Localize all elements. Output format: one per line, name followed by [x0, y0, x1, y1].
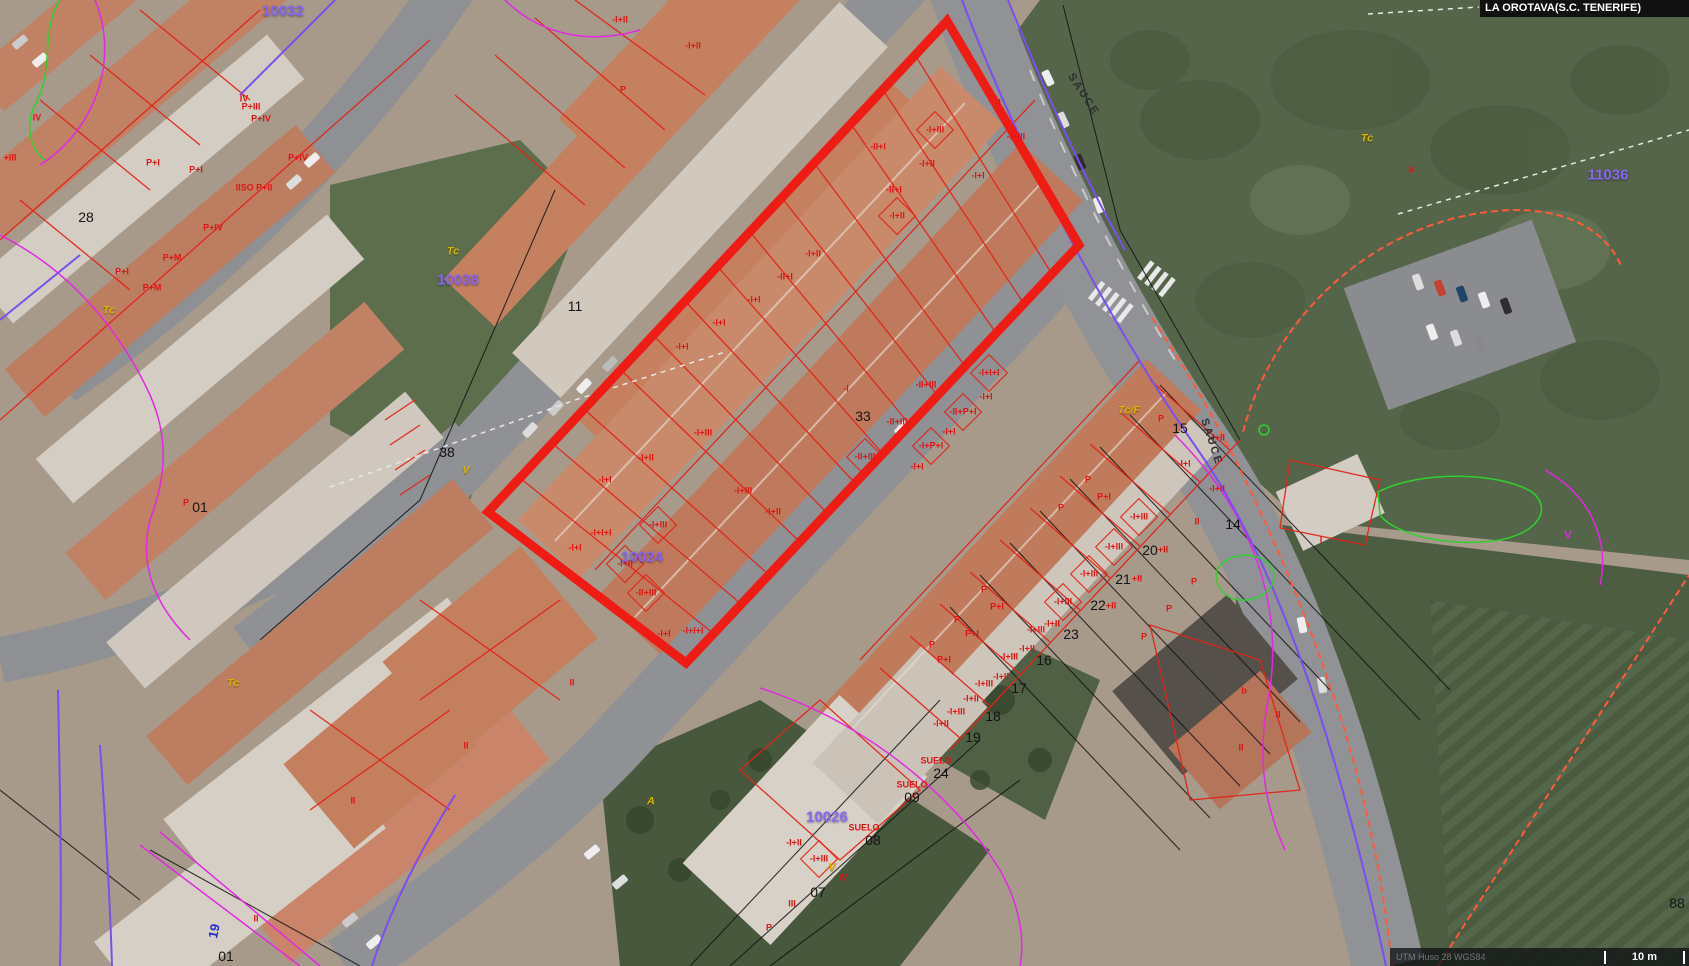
municipality-bar: LA OROTAVA(S.C. TENERIFE)	[1480, 0, 1689, 17]
height-code-label: -I+II	[617, 560, 633, 569]
parcel-id-label: 10026	[806, 810, 848, 825]
plot-number-label: 15	[1172, 421, 1188, 435]
land-use-label: Tc	[1361, 134, 1373, 145]
height-code-label: -II+III	[636, 589, 657, 598]
crs-label: UTM Huso 28 WGS84	[1396, 952, 1604, 962]
land-use-label: A	[647, 797, 655, 808]
height-code-label: P+M	[163, 254, 182, 263]
parcel-id-label: 10032	[262, 4, 304, 19]
height-code-label: -I+III	[1054, 598, 1072, 607]
height-code-label: SUELO	[896, 781, 927, 790]
height-code-label: -I+III	[810, 855, 828, 864]
height-code-label: P+I	[146, 159, 160, 168]
height-code-label: +II	[1158, 546, 1168, 555]
land-use-label: Tc	[447, 247, 459, 258]
height-code-label: P+I	[115, 268, 129, 277]
height-code-label: P+IV	[288, 154, 308, 163]
plot-number-label: 28	[78, 210, 94, 224]
height-code-label: IV	[33, 114, 42, 123]
height-code-label: -I+I	[675, 343, 688, 352]
plot-number-label: 18	[985, 709, 1001, 723]
plot-number-label: 07	[810, 885, 826, 899]
height-code-label: SUELO	[920, 757, 951, 766]
height-code-label: P+I	[1097, 493, 1111, 502]
height-code-label: P+I	[990, 603, 1004, 612]
height-code-label: -II+P+I	[949, 408, 976, 417]
land-use-label: V	[462, 466, 469, 477]
height-code-label: II	[350, 797, 355, 806]
height-code-label: -I+III	[1000, 653, 1018, 662]
height-code-label: -I+III	[1007, 133, 1025, 142]
height-code-label: -I+II	[933, 720, 949, 729]
street-name-label: SAUCE	[1065, 72, 1101, 119]
height-code-label: -II+III	[887, 418, 908, 427]
height-code-label: +II	[1106, 602, 1116, 611]
height-code-label: -I+II	[919, 160, 935, 169]
height-code-label: -I+II	[1044, 620, 1060, 629]
plot-number-label: 88	[1669, 896, 1685, 910]
height-code-label: -I+III	[1130, 513, 1148, 522]
height-code-label: P	[183, 499, 189, 508]
height-code-label: P+I	[189, 166, 203, 175]
height-code-label: -I+I+I	[590, 529, 611, 538]
height-code-label: IV	[240, 95, 249, 104]
height-code-label: -I+III	[1027, 626, 1045, 635]
plot-number-label: 16	[1036, 653, 1052, 667]
height-code-label: -I+II	[638, 454, 654, 463]
height-code-label: -I+I	[942, 428, 955, 437]
height-code-label: P	[954, 616, 960, 625]
land-use-label: Tc	[103, 306, 115, 317]
plot-number-label: 21	[1115, 572, 1131, 586]
land-use-label: Tc/F	[1118, 406, 1140, 417]
parcel-id-label: 10024	[621, 550, 663, 565]
height-code-label: III	[788, 900, 796, 909]
height-code-label: IV	[839, 874, 848, 883]
height-code-label: II	[1275, 711, 1280, 720]
height-code-label: P	[1058, 504, 1064, 513]
land-use-label: Tc	[227, 679, 239, 690]
land-use-label: V	[828, 863, 835, 874]
plot-number-label: 09	[904, 790, 920, 804]
height-code-label: b	[1241, 687, 1247, 696]
height-code-label: -I+I	[979, 393, 992, 402]
height-code-label: -I+I	[568, 544, 581, 553]
height-code-label: P	[766, 924, 772, 933]
height-code-label: II	[463, 742, 468, 751]
height-code-label: IISO P+II	[236, 184, 273, 193]
height-code-label: P	[1191, 578, 1197, 587]
height-code-label: P	[1141, 633, 1147, 642]
height-code-label: II	[253, 915, 258, 924]
height-code-label: I	[1320, 536, 1323, 545]
height-code-label: II	[1194, 518, 1199, 527]
plot-number-label: 22	[1090, 598, 1106, 612]
map-labels-layer: 1003210038100241002611036281138331514202…	[0, 0, 1689, 966]
height-code-label: -II+III	[916, 381, 937, 390]
height-code-label: P+M	[143, 284, 162, 293]
municipality-label: LA OROTAVA(S.C. TENERIFE)	[1485, 2, 1641, 14]
height-code-label: -II+I	[870, 143, 886, 152]
height-code-label: -I+III	[947, 708, 965, 717]
height-code-label: P+IV	[251, 115, 271, 124]
height-code-label: -I	[995, 99, 1001, 108]
height-code-label: -I+II	[612, 16, 628, 25]
scale-bar: 10 m	[1604, 951, 1685, 964]
plot-number-label: 23	[1063, 627, 1079, 641]
plot-number-label: 01	[218, 949, 234, 963]
height-code-label: -I+II	[1209, 434, 1225, 443]
height-code-label: -I+III	[1080, 570, 1098, 579]
height-code-label: -I+II	[963, 695, 979, 704]
height-code-label: +II	[1132, 575, 1142, 584]
height-code-label: -I+I+I	[978, 369, 999, 378]
height-code-label: -II+III	[855, 453, 876, 462]
height-code-label: -I+III	[1105, 543, 1123, 552]
parcel-id-label: 11036	[1588, 168, 1629, 183]
height-code-label: P	[1085, 476, 1091, 485]
height-code-label: -I+III	[649, 521, 667, 530]
height-code-label: -I+I	[657, 630, 670, 639]
height-code-label: P+III	[242, 103, 261, 112]
plot-number-label: 19	[965, 730, 981, 744]
height-code-label: P	[1166, 605, 1172, 614]
plot-number-label: 33	[855, 409, 871, 423]
boundary-letter-label: V	[1564, 531, 1571, 542]
parcel-id-label: 10038	[437, 273, 479, 288]
scale-strip: UTM Huso 28 WGS84 10 m	[1390, 948, 1689, 966]
height-code-label: P+I	[937, 656, 951, 665]
height-code-label: -I+II	[685, 42, 701, 51]
height-code-label: -I+II	[1209, 485, 1225, 494]
height-code-label: P	[1158, 415, 1164, 424]
height-code-label: +III	[4, 154, 17, 163]
plot-number-label: 11	[568, 299, 583, 313]
height-code-label: II	[569, 679, 574, 688]
map-canvas[interactable]: 1003210038100241002611036281138331514202…	[0, 0, 1689, 966]
plot-number-label: 08	[865, 833, 881, 847]
height-code-label: -I+I+I	[682, 627, 703, 636]
height-code-label: -I+I	[971, 172, 984, 181]
scale-tick-right	[1683, 951, 1685, 964]
plot-number-label: 01	[192, 500, 208, 514]
scale-value: 10 m	[1606, 951, 1683, 963]
plot-number-label: 20	[1142, 543, 1158, 557]
height-code-label: P	[981, 586, 987, 595]
plot-number-label: 38	[439, 445, 455, 459]
height-code-label: -I+P+I	[919, 442, 944, 451]
height-code-label: -I+II	[1019, 645, 1035, 654]
height-code-label: -I+II	[805, 250, 821, 259]
plot-number-label: 17	[1011, 681, 1027, 695]
height-code-label: -I+II	[993, 673, 1009, 682]
height-code-label: -I+II	[889, 212, 905, 221]
height-code-label: II	[1238, 744, 1243, 753]
height-code-label: SUELO	[848, 824, 879, 833]
height-code-label: -I+I	[712, 319, 725, 328]
curve-point-label: a	[1408, 165, 1414, 176]
height-code-label: -I+I	[747, 296, 760, 305]
height-code-label: -II+I	[777, 273, 793, 282]
height-code-label: -I+II	[786, 839, 802, 848]
plot-number-label: 14	[1225, 517, 1241, 531]
height-code-label: -I+III	[694, 429, 712, 438]
street-name-label: SAUCE	[1198, 417, 1223, 467]
height-code-label: P	[929, 641, 935, 650]
height-code-label: P+I	[965, 630, 979, 639]
height-code-label: -I	[843, 385, 849, 394]
height-code-label: -I+III	[975, 680, 993, 689]
height-code-label: -I+I	[1177, 460, 1190, 469]
height-code-label: P	[620, 86, 626, 95]
height-code-label: -II+I	[886, 186, 902, 195]
height-code-label: -I+I	[598, 476, 611, 485]
plot-number-label: 24	[933, 766, 949, 780]
height-code-label: P+IV	[203, 224, 223, 233]
height-code-label: -I+I	[910, 463, 923, 472]
height-code-label: -I+III	[926, 126, 944, 135]
road-number-label: 19	[206, 923, 222, 940]
height-code-label: -I+III	[734, 487, 752, 496]
height-code-label: -I+II	[765, 508, 781, 517]
